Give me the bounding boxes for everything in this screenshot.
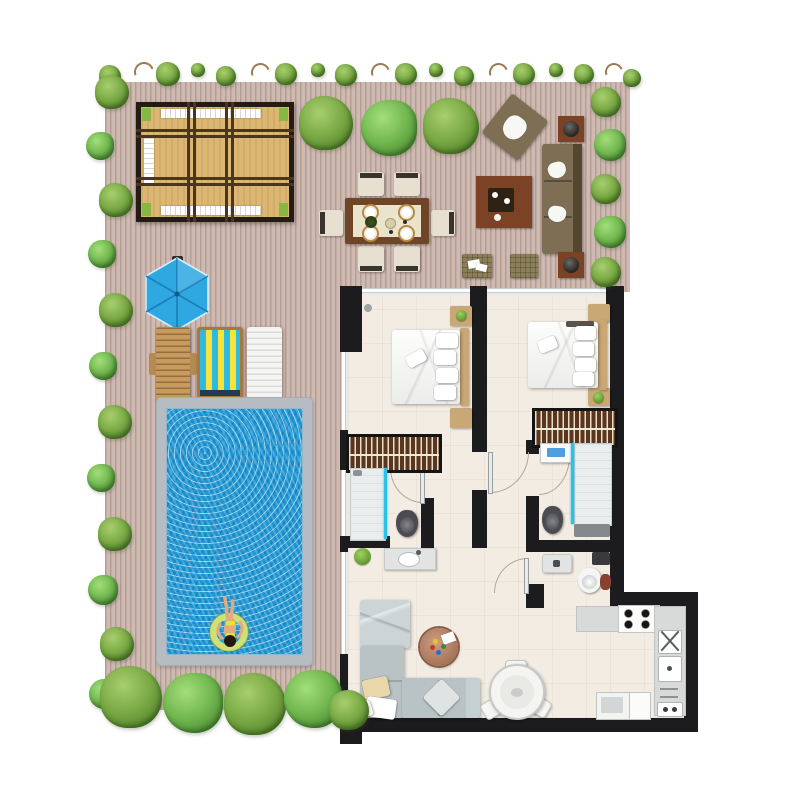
sliding-door-left-3 [341,552,348,654]
cup-icon [504,198,510,204]
tree-icon [594,216,626,248]
pergola-daybed [136,102,294,222]
tap-icon [553,560,560,567]
toy-icon [430,645,435,650]
basket-icon [600,574,611,590]
dining-chair [358,246,384,272]
pillow [436,368,458,383]
washer-lid [547,448,565,457]
pillow [575,358,596,372]
twig-icon [367,59,392,84]
dining-table [345,198,429,244]
tray-icon [488,188,514,212]
shower-tray [574,443,612,526]
tree-icon [99,183,133,217]
wardrobe [532,408,618,448]
double-bed [392,330,460,404]
border-bush-icon [335,64,357,86]
sliding-window-top-2 [487,288,608,295]
chair-cushion [498,112,530,144]
burner-icon [641,609,650,618]
dining-table-round [489,664,545,720]
island-top [601,697,623,713]
condiment-icon [403,220,407,224]
double-bed [528,322,598,388]
wall-hall-west [472,490,487,548]
side-table [558,116,584,142]
sliding-window-top-1 [362,288,472,295]
tree-icon [99,293,133,327]
border-bush-icon [623,69,641,87]
wc-sink-cabinet [542,554,572,573]
tree-icon [86,132,114,160]
pergola-beam [136,177,294,186]
toilet [578,568,601,593]
knob-icon [663,707,668,712]
bath-cabinet [574,524,610,537]
tree-icon [88,240,116,268]
wall-bedroom-divider [472,286,487,452]
wall-bath2-south [526,540,612,552]
paper-icon [441,631,457,645]
coffee-table-outdoor [476,176,532,228]
planter-icon [563,257,579,273]
kitchen-cart [629,692,651,720]
toy-icon [441,644,446,649]
pergola-plant-corner-icon [142,108,151,121]
headboard [598,320,607,390]
border-bush-icon [574,64,594,84]
book-icon [475,263,487,272]
person-on-pool-float [206,592,250,654]
planter-icon [563,121,579,137]
border-bush-icon [454,66,474,86]
border-bush-icon [429,63,443,77]
tree-icon [591,87,621,117]
pillow [434,385,456,400]
tree-icon [594,129,626,161]
pillow [547,205,568,224]
sliding-door-left-2 [341,470,348,538]
toilet [542,506,563,534]
appliance [657,702,683,717]
plant-icon [354,548,371,565]
border-bush-icon [311,63,325,77]
pillow [434,350,456,365]
bush-icon [163,673,223,733]
dining-chair [431,210,455,236]
kitchen-island [596,692,630,720]
drain-icon [667,666,672,671]
border-bush-icon [513,63,535,85]
shower-head-icon [353,470,362,476]
ottoman [510,254,538,278]
sofa-chaise [360,600,410,648]
parasol-icon [136,250,218,336]
plate-icon [398,225,415,242]
tree-icon [98,517,132,551]
striped-deck-chair [197,327,243,399]
outdoor-sofa [542,144,582,254]
door-leaf [524,558,529,594]
vanity [384,548,436,570]
tree-icon [591,257,621,287]
door-leaf [488,452,493,494]
bush-icon [100,666,162,728]
toy-icon [436,650,441,655]
pillow [575,326,596,340]
shower-glass [384,468,387,539]
sink-basin [658,656,682,682]
drawer-handle [660,696,678,698]
border-bush-icon [549,63,563,77]
tree-icon [98,405,132,439]
shower-glass [571,443,574,524]
shower-tray [350,468,386,541]
wall-corner-nw [340,286,362,352]
pillow [436,333,458,348]
sofa-back [573,144,582,254]
washing-machine [540,443,573,463]
tree-icon [100,627,134,661]
bowl-icon [385,218,396,229]
twig-icon [247,59,272,84]
border-bush-icon [275,63,297,85]
coffee-table-round [420,628,458,666]
tree-icon [95,75,129,109]
wc-shelf [592,552,610,565]
tree-icon [361,100,417,156]
pillow [573,372,594,386]
bush-icon [329,690,369,730]
border-bush-icon [216,66,236,86]
condiment-icon [389,230,393,234]
headboard [460,328,469,406]
drawer-handle [660,688,678,690]
pillow [573,342,594,356]
white-lounger [247,327,282,399]
faucet-icon [658,630,680,652]
burner-icon [624,609,633,618]
cup-icon [494,214,501,221]
plate-icon [511,688,523,697]
ottoman [462,254,492,278]
toy-icon [433,639,438,644]
wall-south [340,718,698,732]
twig-icon [485,59,510,84]
door-leaf [420,468,425,504]
floor-plan-canvas [0,0,800,800]
dining-chair [319,210,343,236]
knob-icon [672,707,677,712]
pergola-beam [187,102,196,222]
salad-bowl-icon [365,216,377,228]
seat-seam [544,180,572,182]
pergola-cushion-top [161,109,261,118]
armrest [466,678,480,718]
nightstand [450,408,472,428]
dining-chair [394,172,420,196]
tap-icon [416,550,421,555]
pillow [546,160,567,180]
pergola-beam [225,102,234,222]
dining-chair [358,172,384,196]
wall-kitchen-east [684,592,698,732]
tree-icon [89,352,117,380]
bush-icon [224,673,286,735]
side-table [558,252,584,278]
border-bush-icon [395,63,417,85]
plant-icon [456,310,467,321]
pergola-cushion-bottom [161,206,261,215]
burner-icon [624,620,633,629]
pergola-beam [136,129,294,138]
pergola-plant-corner-icon [279,203,288,216]
wall-lamp-icon [364,304,372,312]
tree-icon [423,98,479,154]
tree-icon [299,96,353,150]
toilet [396,510,418,537]
tree-icon [591,174,621,204]
border-bush-icon [191,63,205,77]
sliding-door-left-1 [341,352,348,430]
legs [225,598,233,620]
wooden-lounger [156,327,190,401]
tree-icon [88,575,118,605]
plant-icon [593,392,604,403]
burner-icon [641,620,650,629]
tree-icon [87,464,115,492]
pergola-plant-corner-icon [142,203,151,216]
cup-icon [492,192,498,198]
dining-chair [394,246,420,272]
wall-bath1-east [421,498,434,548]
pergola-plant-corner-icon [279,108,288,121]
plate-icon [398,204,415,221]
border-bush-icon [156,62,180,86]
